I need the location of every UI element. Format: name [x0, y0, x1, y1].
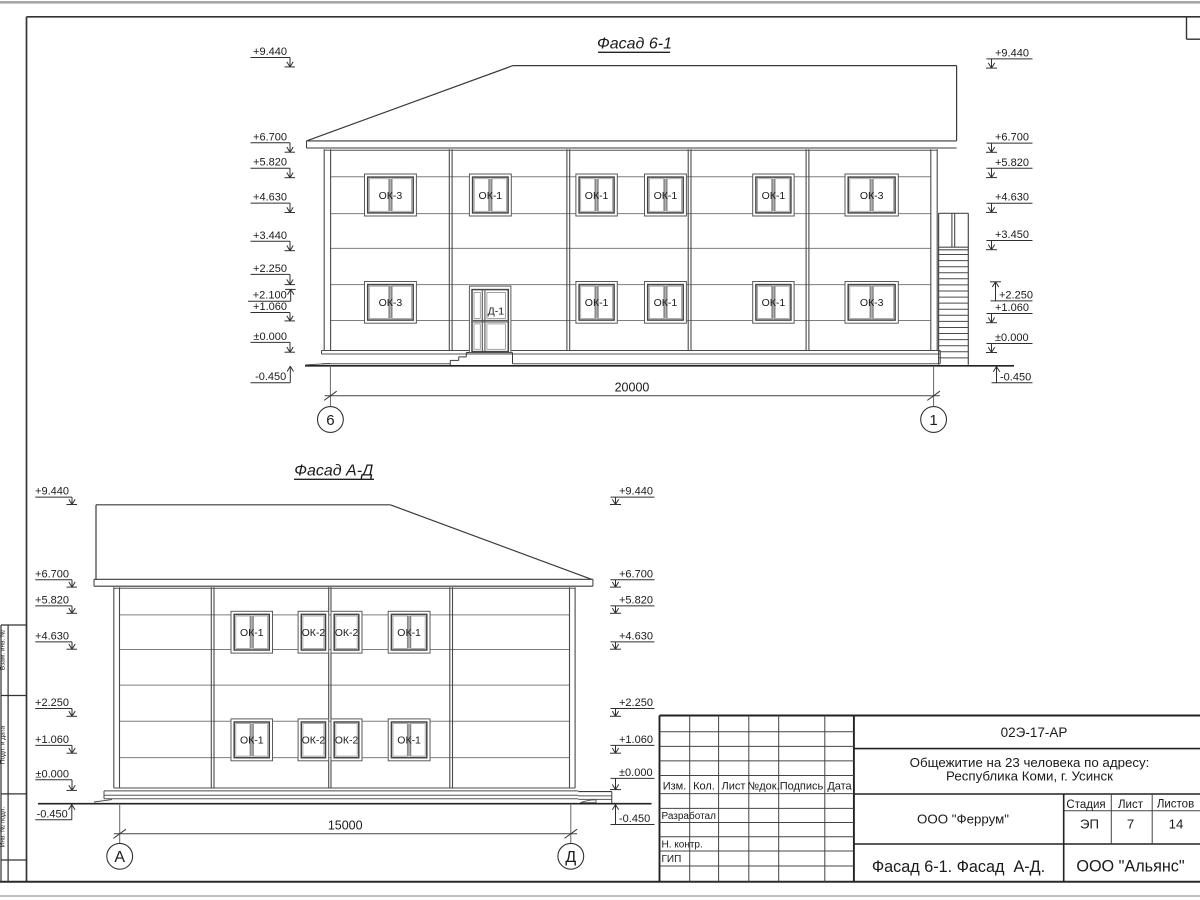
svg-text:+2.250: +2.250	[619, 697, 653, 709]
svg-text:ЭП: ЭП	[1080, 817, 1099, 832]
svg-text:ОК-2: ОК-2	[302, 735, 326, 747]
svg-text:Подп. и дата: Подп. и дата	[0, 725, 6, 764]
svg-text:ОК-3: ОК-3	[379, 190, 403, 202]
svg-text:ОК-2: ОК-2	[335, 735, 359, 747]
svg-text:+2.250: +2.250	[35, 697, 69, 709]
svg-text:ОК-1: ОК-1	[397, 627, 421, 639]
svg-text:-0.450: -0.450	[1000, 371, 1031, 383]
svg-text:ОК-1: ОК-1	[479, 190, 503, 202]
svg-text:±0.000: ±0.000	[995, 332, 1029, 344]
svg-text:6: 6	[326, 412, 334, 429]
svg-text:№док.: №док.	[747, 781, 779, 793]
svg-text:Фасад 6-1. Фасад А-Д.: Фасад 6-1. Фасад А-Д.	[872, 858, 1045, 876]
svg-text:20000: 20000	[615, 381, 650, 395]
svg-text:ООО "Альянс": ООО "Альянс"	[1076, 858, 1184, 876]
svg-text:+4.630: +4.630	[619, 630, 653, 642]
svg-text:ООО "Феррум": ООО "Феррум"	[917, 812, 1009, 827]
svg-text:Стадия: Стадия	[1066, 799, 1105, 811]
svg-text:+5.820: +5.820	[253, 157, 287, 169]
svg-text:+1.060: +1.060	[619, 734, 653, 746]
svg-text:+9.440: +9.440	[619, 486, 653, 498]
svg-text:±0.000: ±0.000	[35, 768, 69, 780]
svg-text:ОК-2: ОК-2	[302, 627, 326, 639]
svg-text:+5.820: +5.820	[619, 594, 653, 606]
svg-text:02Э-17-АР: 02Э-17-АР	[1001, 725, 1068, 740]
svg-text:Фасад А-Д: Фасад А-Д	[294, 463, 373, 480]
svg-text:+2.250: +2.250	[253, 263, 287, 275]
svg-text:+6.700: +6.700	[619, 568, 653, 580]
svg-text:+9.440: +9.440	[35, 486, 69, 498]
svg-text:Лист: Лист	[722, 781, 746, 793]
svg-text:+2.100: +2.100	[253, 290, 287, 302]
svg-text:ОК-1: ОК-1	[762, 297, 786, 309]
svg-text:ОК-2: ОК-2	[335, 627, 359, 639]
svg-text:Изм.: Изм.	[663, 781, 687, 793]
svg-text:±0.000: ±0.000	[253, 331, 287, 343]
svg-text:+9.440: +9.440	[253, 46, 287, 58]
svg-text:+4.630: +4.630	[995, 192, 1029, 204]
svg-text:ГИП: ГИП	[662, 854, 682, 865]
svg-text:15000: 15000	[328, 819, 363, 833]
svg-text:Фасад 6-1: Фасад 6-1	[597, 36, 672, 53]
svg-text:+1.060: +1.060	[995, 302, 1029, 314]
svg-text:ОК-1: ОК-1	[397, 735, 421, 747]
svg-text:ОК-1: ОК-1	[585, 297, 609, 309]
svg-text:+3.440: +3.440	[253, 230, 287, 242]
svg-text:Дата: Дата	[827, 781, 852, 793]
svg-text:Д: Д	[565, 849, 576, 866]
svg-text:Кол.: Кол.	[693, 781, 715, 793]
svg-text:+2.250: +2.250	[999, 289, 1033, 301]
svg-text:Н. контр.: Н. контр.	[662, 840, 703, 851]
svg-text:Лист: Лист	[1118, 799, 1144, 811]
svg-text:ОК-3: ОК-3	[379, 297, 403, 309]
svg-text:14: 14	[1169, 817, 1184, 832]
svg-text:Разработал: Разработал	[662, 810, 717, 822]
svg-text:7: 7	[1127, 817, 1134, 832]
svg-text:+4.630: +4.630	[253, 192, 287, 204]
svg-text:Республика Коми, г. Усинск: Республика Коми, г. Усинск	[946, 769, 1113, 784]
svg-text:1: 1	[929, 412, 937, 429]
svg-text:+1.060: +1.060	[253, 301, 287, 313]
svg-text:+6.700: +6.700	[35, 568, 69, 580]
svg-text:+3.450: +3.450	[995, 229, 1029, 241]
svg-text:ОК-1: ОК-1	[654, 190, 678, 202]
svg-text:Инв. № подл.: Инв. № подл.	[0, 807, 6, 848]
svg-text:+4.630: +4.630	[35, 630, 69, 642]
svg-text:Взам. инв. №: Взам. инв. №	[0, 630, 6, 670]
svg-text:ОК-1: ОК-1	[240, 627, 264, 639]
svg-text:±0.000: ±0.000	[619, 767, 653, 779]
svg-text:-0.450: -0.450	[619, 813, 650, 825]
svg-text:ОК-1: ОК-1	[762, 190, 786, 202]
svg-text:А: А	[114, 849, 125, 866]
svg-text:ОК-3: ОК-3	[860, 297, 884, 309]
svg-text:ОК-1: ОК-1	[654, 297, 678, 309]
svg-text:ОК-3: ОК-3	[860, 190, 884, 202]
svg-text:ОК-1: ОК-1	[240, 735, 264, 747]
svg-text:+6.700: +6.700	[253, 131, 287, 143]
svg-text:ОК-1: ОК-1	[585, 190, 609, 202]
svg-text:Подпись: Подпись	[780, 781, 824, 793]
svg-text:+9.440: +9.440	[995, 47, 1029, 59]
svg-text:+5.820: +5.820	[35, 594, 69, 606]
svg-text:+5.820: +5.820	[995, 157, 1029, 169]
svg-text:Листов: Листов	[1157, 799, 1194, 811]
svg-text:+6.700: +6.700	[995, 132, 1029, 144]
svg-text:-0.450: -0.450	[255, 371, 286, 383]
svg-text:+1.060: +1.060	[35, 734, 69, 746]
svg-text:-0.450: -0.450	[37, 808, 68, 820]
svg-text:Д-1: Д-1	[488, 306, 505, 318]
